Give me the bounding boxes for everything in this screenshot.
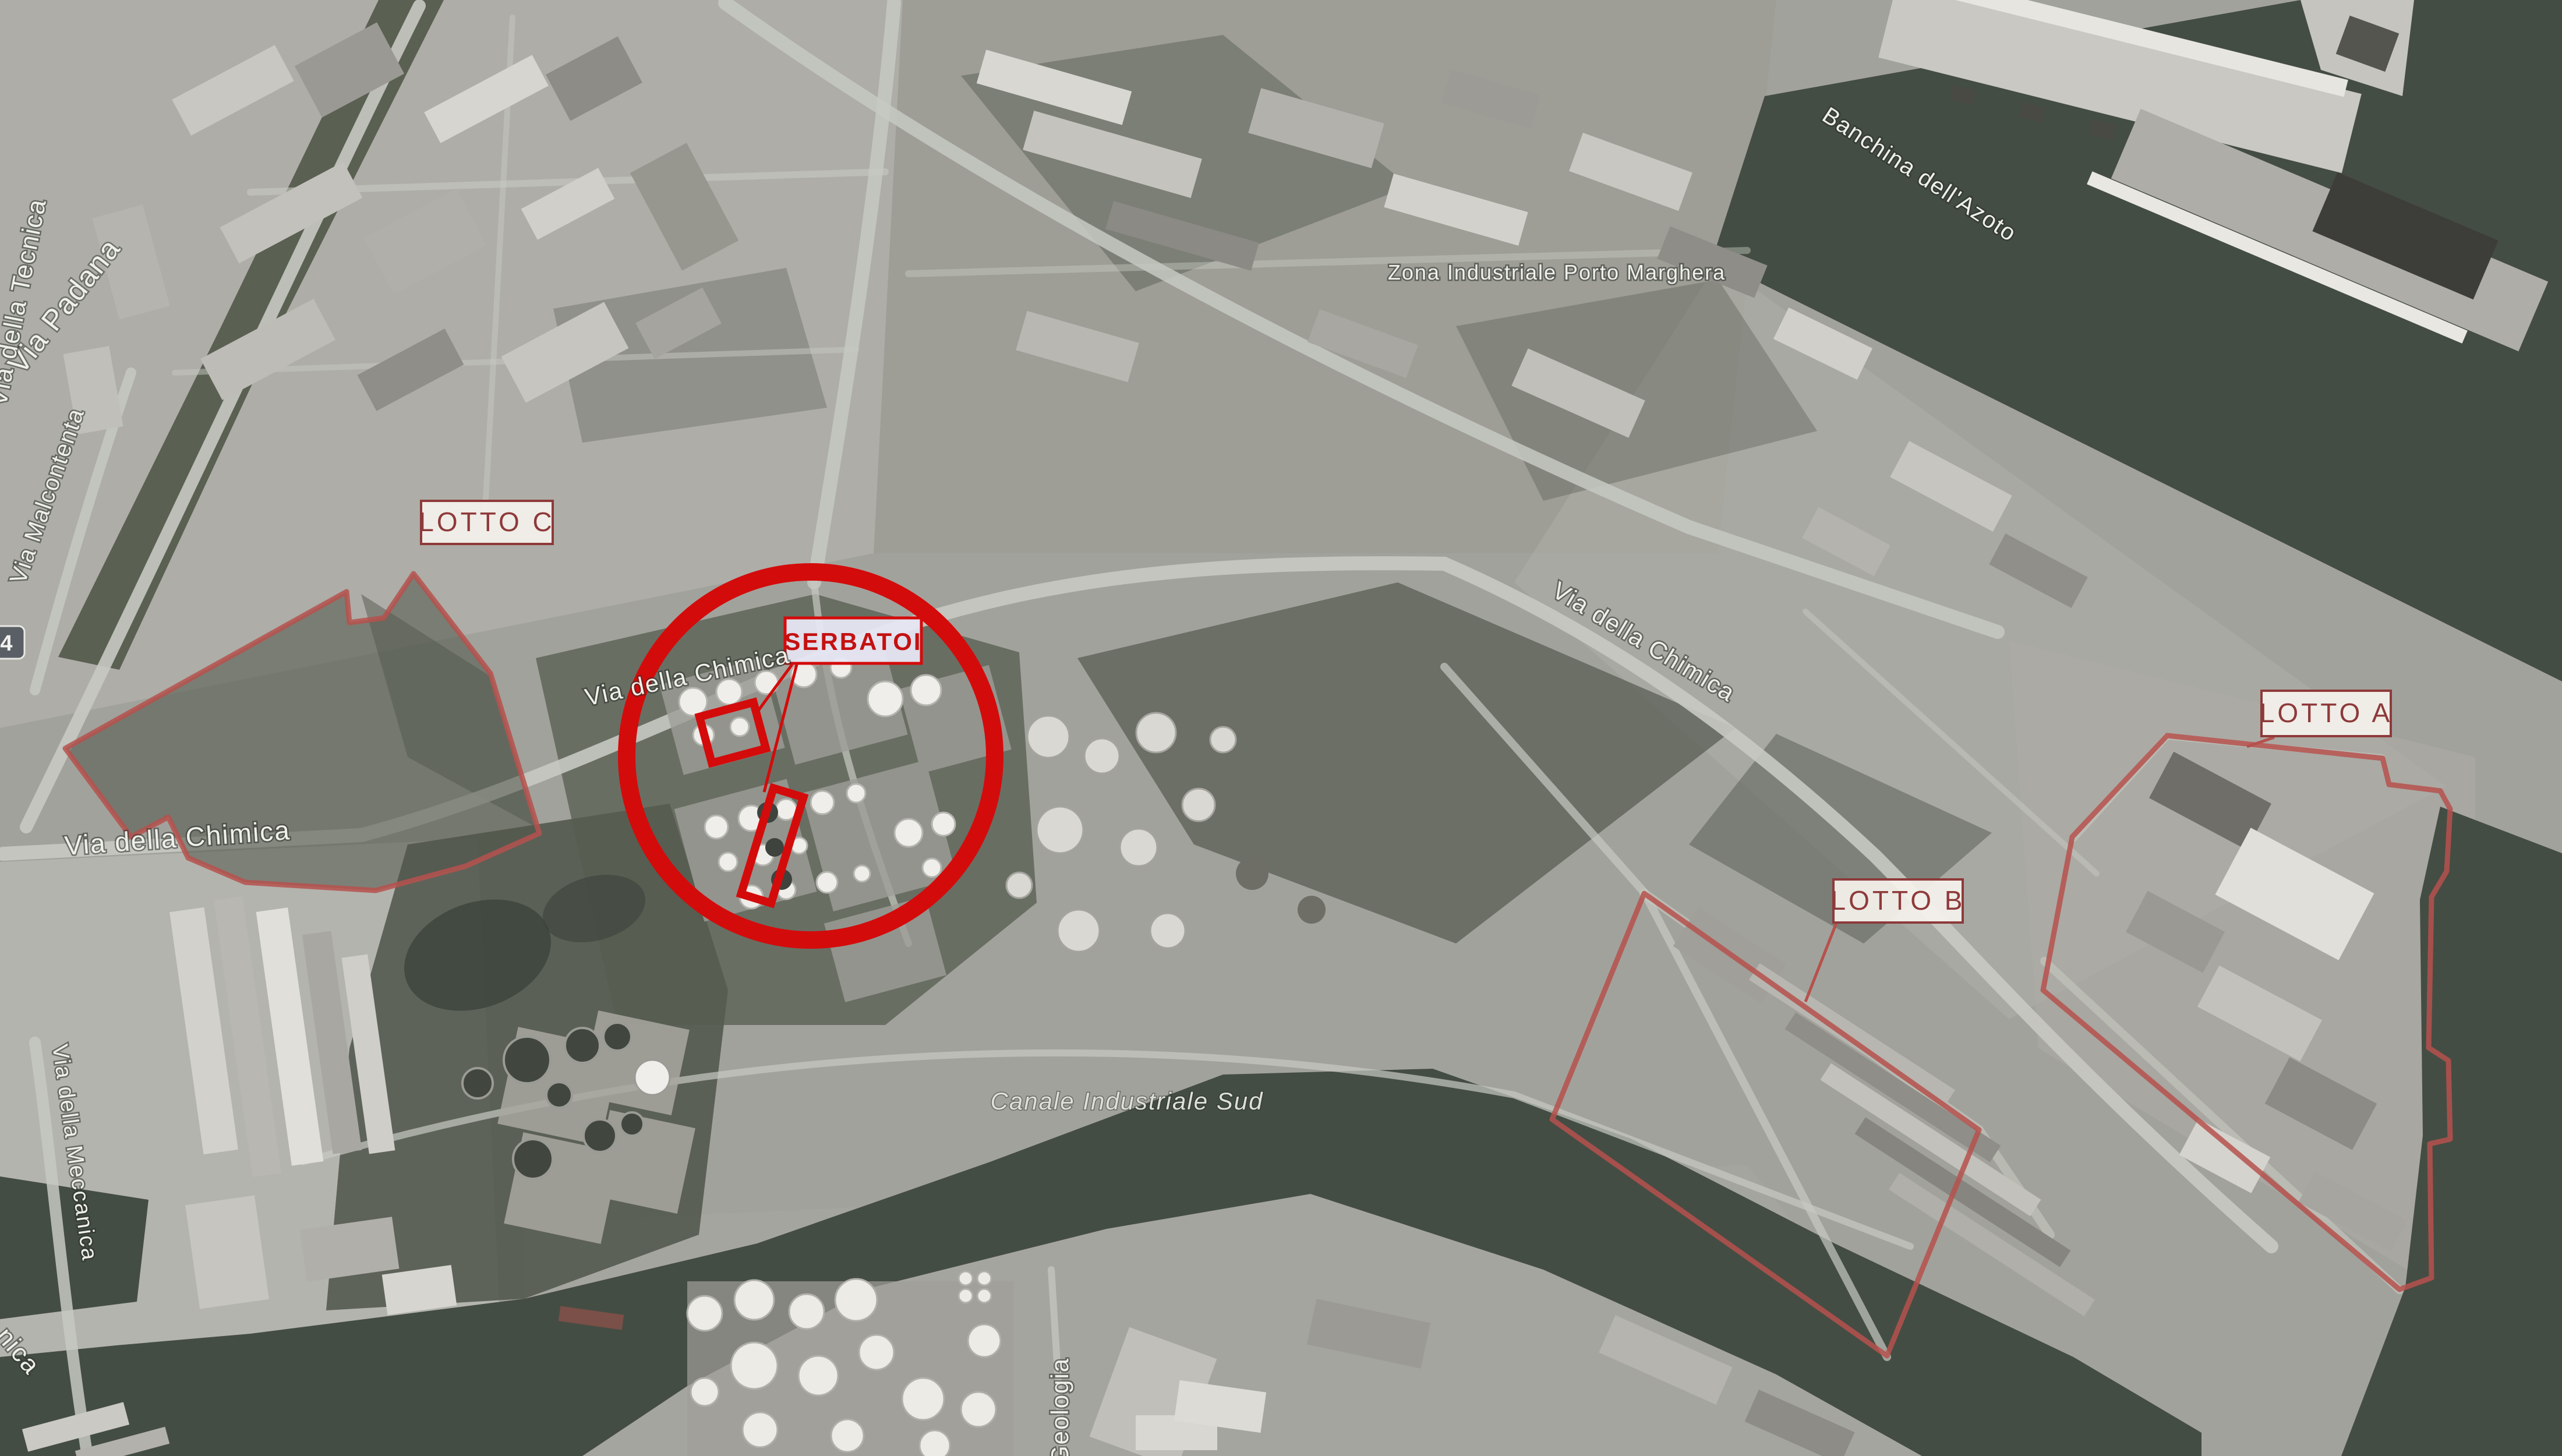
serbatoi-label: SERBATOI	[784, 618, 922, 663]
lotto-b-label-text: LOTTO B	[1831, 885, 1966, 916]
serbatoi-label-text: SERBATOI	[784, 628, 922, 655]
lotto-b-label: LOTTO B	[1831, 879, 1966, 923]
lotto-a-label-text: LOTTO A	[2260, 698, 2393, 728]
place-label-zona-industriale: Zona Industriale Porto Marghera	[1388, 260, 1726, 284]
road-shield: 4	[0, 626, 24, 659]
water-label-canale-industriale-sud: Canale Industriale Sud	[991, 1087, 1264, 1115]
lotto-a-label: LOTTO A	[2260, 691, 2393, 736]
lotto-c-label: LOTTO C	[419, 501, 555, 544]
road-shield-number: 4	[0, 631, 12, 656]
lotto-c-label-text: LOTTO C	[419, 507, 555, 537]
street-label-geologia: Geologia	[1046, 1358, 1073, 1456]
satellite-map: LOTTO C LOTTO B LOTTO A SERBATOI Via Pad…	[0, 0, 2562, 1456]
